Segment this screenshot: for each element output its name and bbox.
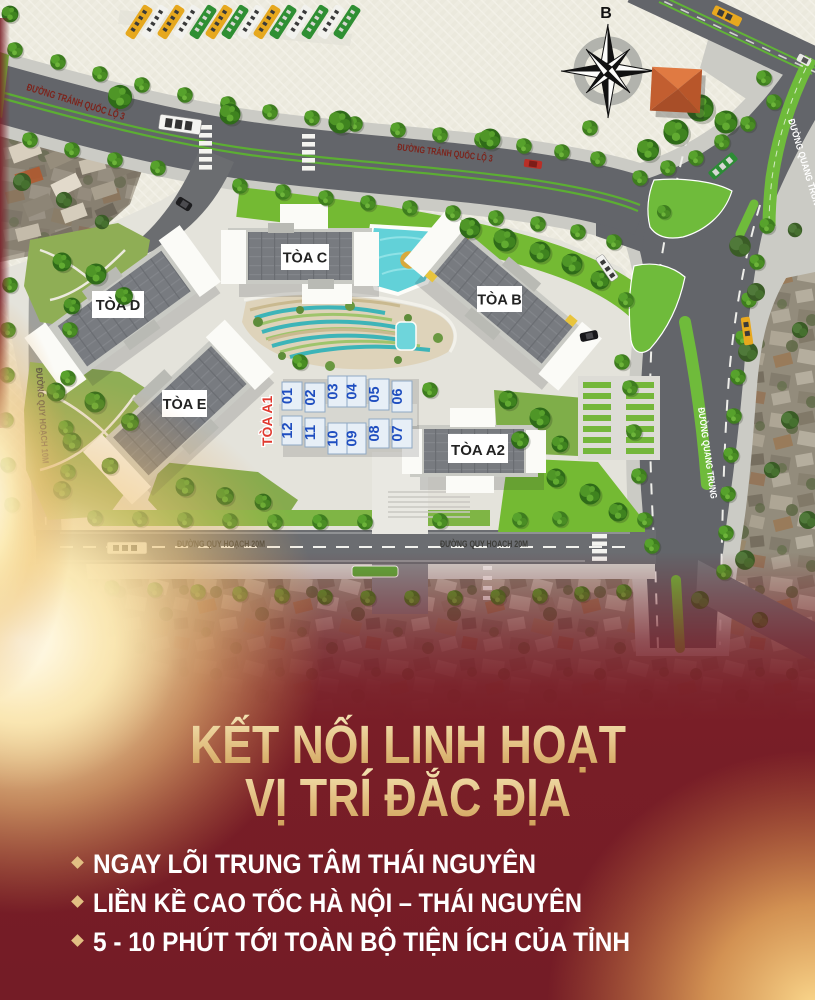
svg-text:TÒA A1: TÒA A1 <box>258 395 275 446</box>
svg-text:B: B <box>600 5 612 22</box>
svg-text:08: 08 <box>367 425 383 441</box>
svg-text:03: 03 <box>326 383 342 399</box>
svg-text:5 - 10 PHÚT TỚI TOÀN BỘ TIỆN Í: 5 - 10 PHÚT TỚI TOÀN BỘ TIỆN ÍCH CỦA TỈN… <box>93 925 630 957</box>
svg-text:02: 02 <box>303 389 319 405</box>
svg-text:11: 11 <box>303 425 319 440</box>
svg-text:TÒA A2: TÒA A2 <box>451 441 505 459</box>
svg-text:KẾT NỐI LINH HOẠT: KẾT NỐI LINH HOẠT <box>190 715 626 775</box>
svg-text:06: 06 <box>390 388 406 404</box>
svg-text:10: 10 <box>326 430 342 446</box>
svg-text:01: 01 <box>280 388 296 404</box>
svg-text:07: 07 <box>390 425 406 441</box>
svg-text:TÒA C: TÒA C <box>283 249 328 267</box>
svg-text:TÒA B: TÒA B <box>477 291 522 309</box>
svg-text:LIỀN KỀ CAO TỐC HÀ NỘI – THÁI: LIỀN KỀ CAO TỐC HÀ NỘI – THÁI NGUYÊN <box>93 886 582 918</box>
svg-text:09: 09 <box>345 430 361 446</box>
svg-text:05: 05 <box>367 386 383 402</box>
svg-text:VỊ TRÍ ĐẮC ĐỊA: VỊ TRÍ ĐẮC ĐỊA <box>245 767 571 828</box>
svg-text:04: 04 <box>345 383 361 399</box>
svg-text:12: 12 <box>280 422 296 438</box>
svg-text:ĐƯỜNG QUY HOẠCH 20M: ĐƯỜNG QUY HOẠCH 20M <box>440 538 528 550</box>
svg-text:NGAY LÕI TRUNG TÂM THÁI NGUYÊN: NGAY LÕI TRUNG TÂM THÁI NGUYÊN <box>93 848 536 879</box>
